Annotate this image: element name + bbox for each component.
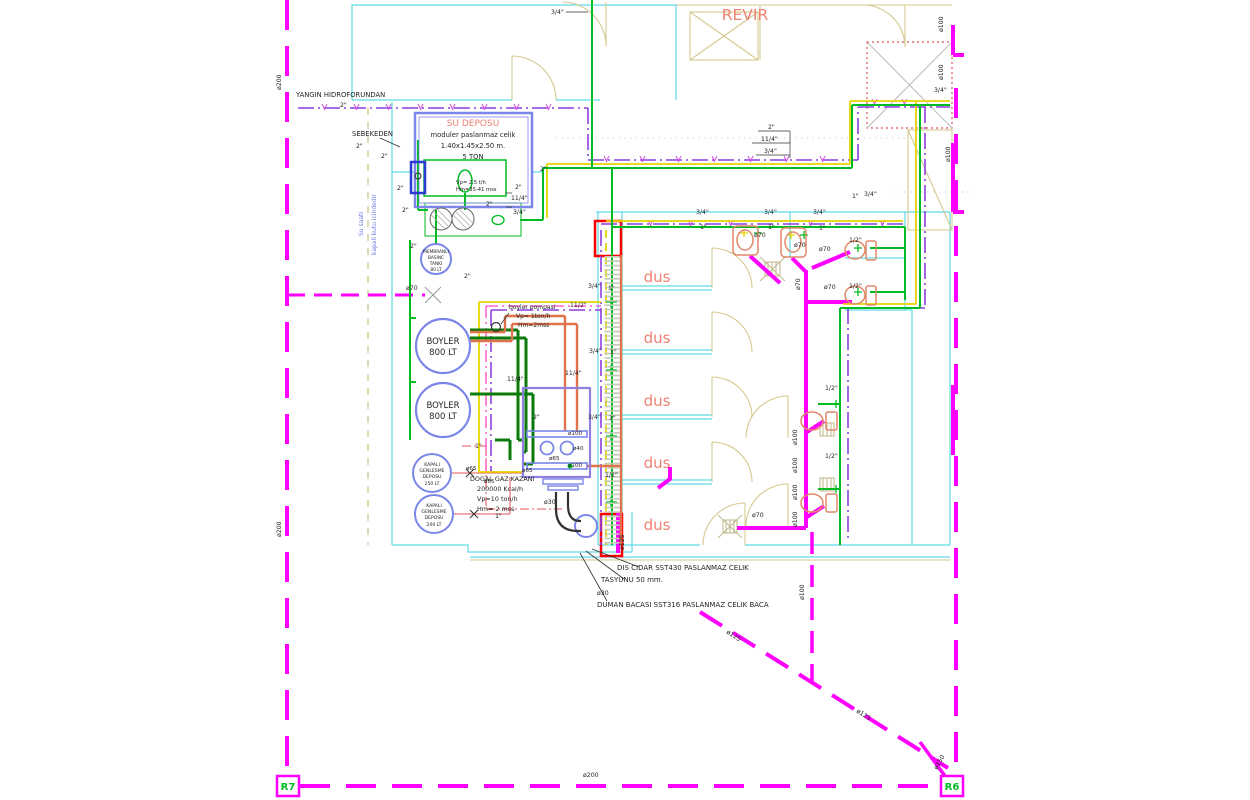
dia70-06: ø70 (752, 512, 764, 519)
size-1in-09: 1" (852, 193, 859, 200)
dia100-rot-07: ø100 (938, 64, 945, 80)
dia70-04: ø70 (819, 246, 831, 253)
dia125-diag-1: ø125 (725, 629, 742, 643)
size-1in-01: 1" (475, 443, 482, 450)
genlesme2-line-3: DEPOSU (424, 515, 443, 521)
size-34-10: 3/4" (764, 148, 777, 155)
size-34-06: 3/4" (764, 209, 777, 216)
size-1in-03: 1" (608, 285, 615, 292)
genlesme1-line-2: GENLESME (419, 468, 444, 474)
chimney-note-2: TASYUNU 50 mm. (600, 576, 663, 584)
size-114-04: 11/4" (761, 136, 778, 143)
boyler-pompasi-line-1: boyler pompasi (509, 304, 556, 311)
dia70-rot-01: ø70 (795, 278, 802, 290)
size-34-07: 3/4" (813, 209, 826, 216)
size-1in-04: 1" (610, 349, 617, 356)
dia125-diag-2: ø125 (855, 708, 872, 722)
su-deposu-spec-3: 5 TON (462, 153, 483, 161)
dia65-kazan-2: ø65 (522, 468, 533, 474)
dogalgaz-kazani-line-3: Vp=10 ton/h (477, 495, 518, 503)
dia100-kazan-2: ø100 (568, 463, 583, 469)
dus-label-1: dus (644, 268, 671, 286)
genlesme1-line-3: DEPOSU (422, 474, 441, 480)
dia70-03: ø70 (794, 242, 806, 249)
size-34-03: 3/4" (589, 348, 602, 355)
chimney-note-1: DIS CIDAR SST430 PASLANMAZ CELIK (617, 564, 749, 572)
sebekeden-label: SEBEKEDEN (352, 130, 393, 138)
labels-layer: YANGIN HIDROFORUNDAN2"SEBEKEDEN2"SU DEPO… (0, 0, 1250, 800)
size-2in-07: 2" (486, 201, 493, 208)
dia70-01: ø70 (406, 285, 418, 292)
boyler2-label-2: 800 LT (429, 412, 457, 422)
dia150-rot: ø150 (933, 754, 947, 771)
dia100-rot-04: ø100 (792, 511, 799, 527)
dia40-kazan: ø40 (573, 446, 584, 452)
su-saati-note-2: kapali kutu icindedir (371, 194, 378, 255)
r6-marker-label: R6 (945, 782, 960, 793)
size-12-02: 1/2" (849, 237, 862, 244)
size-2in-05: 2" (402, 207, 409, 214)
dus-label-3: dus (644, 392, 671, 410)
yangin-hidroforundan-label: YANGIN HIDROFORUNDAN (295, 91, 385, 99)
chimney-note-3: DUMAN BACASI SST316 PASLANMAZ CELIK BACA (597, 601, 769, 609)
size-1in-07: 1" (768, 224, 775, 231)
size-34-11: 3/4" (551, 9, 564, 16)
dia100-rot-01: ø100 (792, 429, 799, 445)
size-2in-10: 2" (464, 273, 471, 280)
genlesme2-line-4: 200 LT (427, 522, 442, 528)
dia100-rot-08: ø100 (945, 146, 952, 162)
dia200-bottom: ø200 (583, 772, 599, 779)
hidrofor-spec-1: Vp= 2.5 t/h (456, 180, 486, 186)
su-saati-note-1: Su saati (358, 212, 365, 236)
dus-label-2: dus (644, 329, 671, 347)
dia100-rot-05: ø100 (799, 584, 806, 600)
size-1in-05: 1" (609, 415, 616, 422)
membran-tank-line-4: 80 LT (430, 267, 442, 273)
boyler1-label-1: BOYLER (426, 337, 459, 347)
su-deposu-spec-2: 1.40x1.45x2.50 m. (441, 142, 505, 150)
dia30-01: ø30 (544, 499, 556, 506)
boyler2-label-1: BOYLER (426, 401, 459, 411)
su-deposu-spec-1: moduler paslanmaz celik (431, 131, 516, 139)
dia70-05: ø70 (824, 284, 836, 291)
size-12-03: 1/2" (849, 283, 862, 290)
boyler-pompasi-line-2: Vp= 1ton/h (516, 313, 551, 320)
size-12-05: 1/2" (825, 453, 838, 460)
size-114-01: 11/4" (511, 195, 528, 202)
membran-tank-line-2: BASINC (428, 255, 444, 261)
revir-label: REVIR (722, 6, 769, 24)
size-112-01: 11/2" (570, 302, 587, 309)
su-deposu-title: SU DEPOSU (447, 119, 500, 129)
size-34-02: 3/4" (588, 283, 601, 290)
dia70-02: ø70 (754, 232, 766, 239)
size-2in-06: 2" (410, 243, 417, 250)
dia65-kazan-1: ø65 (549, 456, 560, 462)
boyler1-label-2: 800 LT (429, 348, 457, 358)
dia100-rot-02: ø100 (792, 457, 799, 473)
size-34-01: 3/4" (513, 209, 526, 216)
dogalgaz-kazani-line-1: DOGAL GAZ KAZANI (470, 475, 535, 483)
size-2in-02: 2" (356, 143, 363, 150)
dia100-rot-06: ø100 (938, 16, 945, 32)
size-12-04: 1/2" (825, 385, 838, 392)
genlesme2-line-2: GENLESME (421, 509, 446, 515)
size-34-09: 3/4" (934, 87, 947, 94)
dia30-02: ø30 (597, 590, 609, 597)
dogalgaz-kazani-line-2: 200000 Kcal/h (477, 485, 523, 493)
genlesme1-line-4: 250 LT (425, 481, 440, 487)
r7-marker-label: R7 (281, 782, 296, 793)
membran-tank-line-1: MEMBRANLI (423, 249, 449, 255)
dia200-rot-2: ø200 (276, 521, 283, 537)
drawing-canvas: YANGIN HIDROFORUNDAN2"SEBEKEDEN2"SU DEPO… (0, 0, 1250, 800)
size-12-01: 1/2" (605, 472, 618, 479)
dus-label-4: dus (644, 454, 671, 472)
dia100-kazan-1: ø100 (568, 431, 583, 437)
size-34-05: 3/4" (696, 209, 709, 216)
size-34-08: 3/4" (864, 191, 877, 198)
size-114-03: 11/4" (565, 370, 582, 377)
size-2in-08: 2" (515, 184, 522, 191)
size-114-02: 11/4" (507, 376, 524, 383)
dogalgaz-kazani-line-4: Hm= 2 mss (477, 505, 515, 513)
size-2in-01: 2" (340, 102, 347, 109)
size-2in-12: 2" (768, 124, 775, 131)
dia65-kazan-4: ø65 (484, 479, 495, 485)
size-1in-06: 1" (700, 224, 707, 231)
size-2in-03: 2" (381, 153, 388, 160)
size-34-04: 3/4" (588, 414, 601, 421)
membran-tank-line-3: TANKI (429, 261, 443, 267)
genlesme2-line-1: KAPALI (426, 503, 442, 509)
dia125-rot-01: ø125 (619, 534, 626, 550)
dia100-rot-03: ø100 (792, 484, 799, 500)
size-2in-11: 2" (533, 414, 540, 421)
genlesme1-line-1: KAPALI (424, 462, 440, 468)
boyler-pompasi-line-3: Hm=2mss (518, 322, 549, 329)
dus-label-5: dus (644, 516, 671, 534)
hidrofor-spec-2: Hm=35-41 mss (456, 187, 497, 193)
dia65-kazan-3: ø65 (466, 466, 477, 472)
dia200-rot-1: ø200 (276, 74, 283, 90)
size-1in-02: 1" (495, 513, 502, 520)
size-2in-09: 2" (540, 166, 547, 173)
size-2in-04: 2" (397, 185, 404, 192)
size-1in-08: 1" (819, 225, 826, 232)
